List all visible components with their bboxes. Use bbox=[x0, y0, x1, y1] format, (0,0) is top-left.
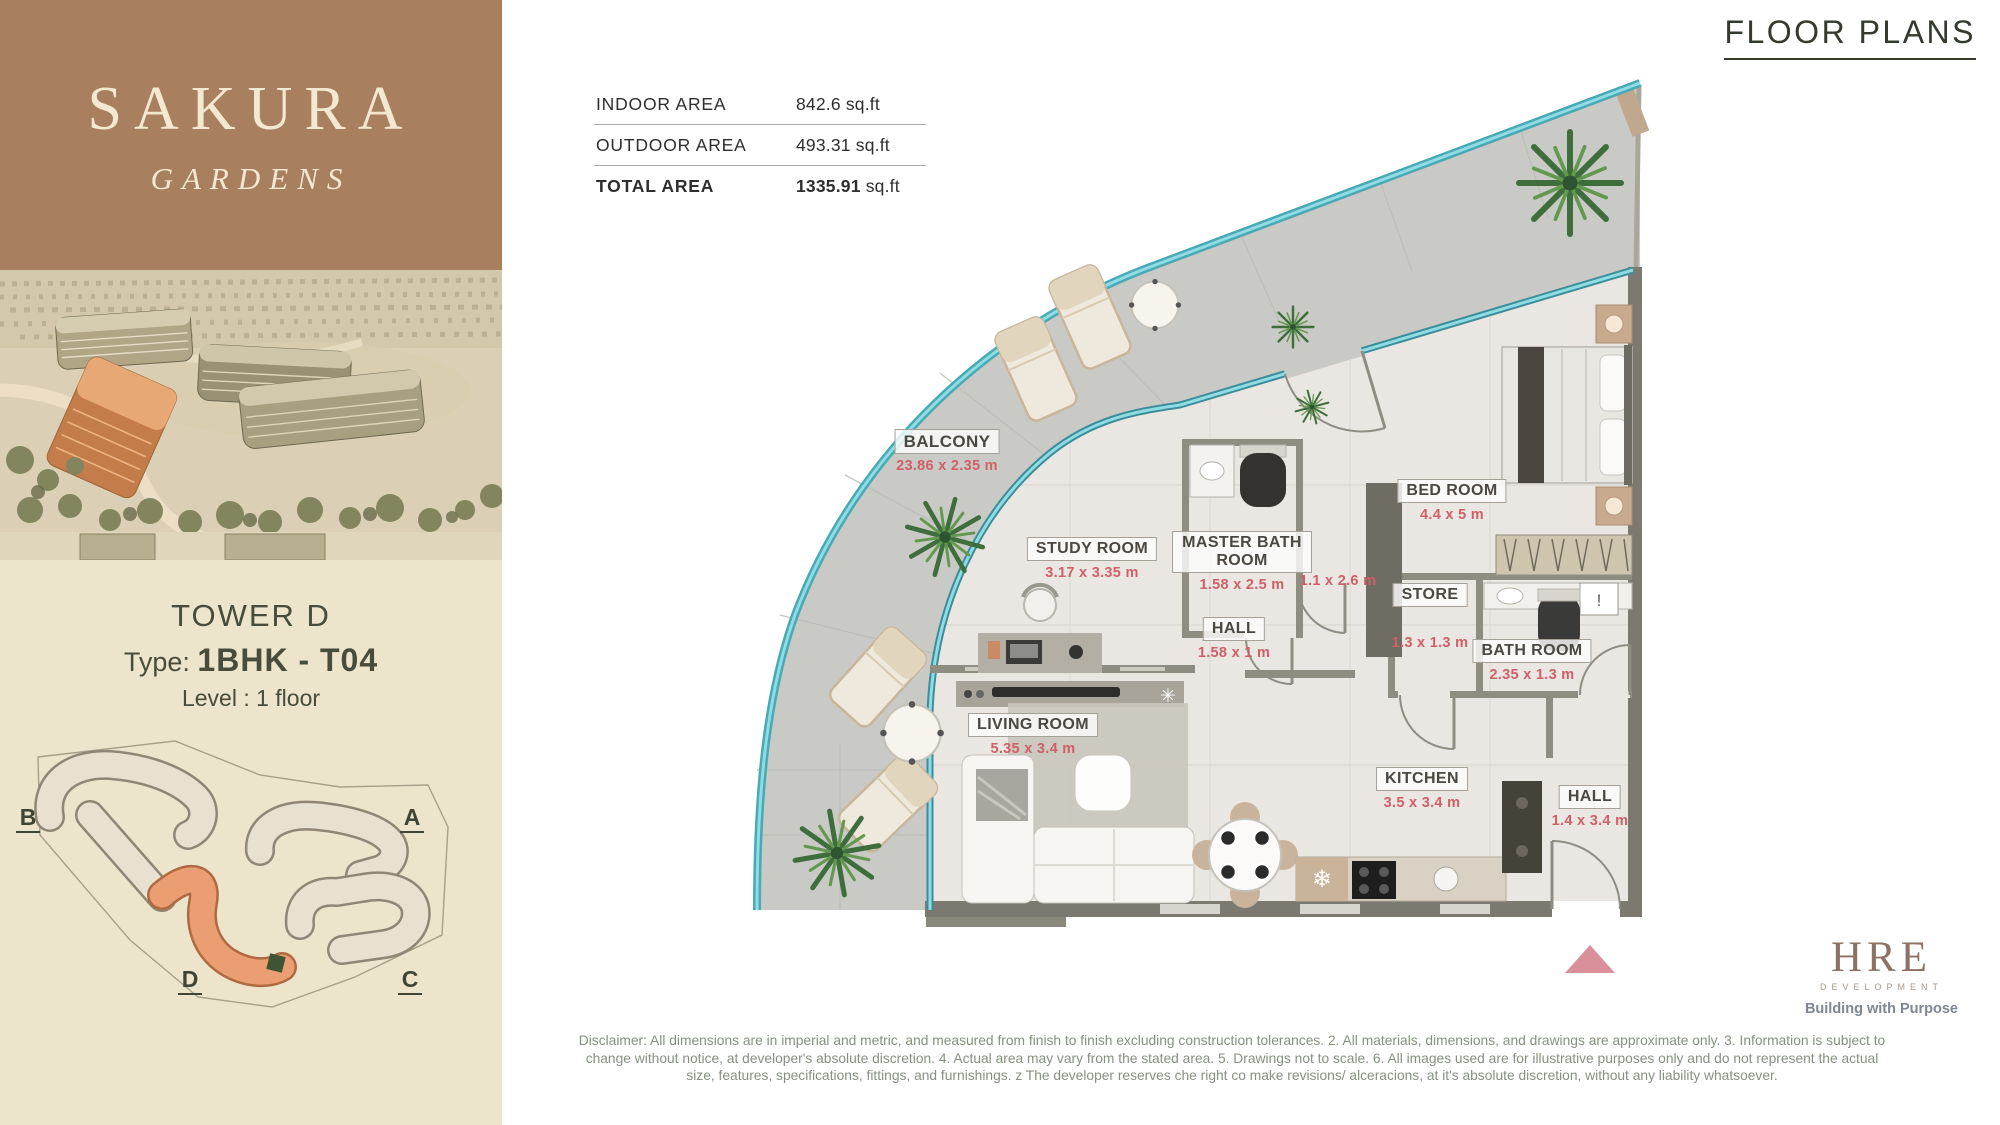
unit-level-line: Level : 1 floor bbox=[0, 685, 502, 712]
entrance-opening bbox=[1552, 901, 1620, 917]
unit-type-line: Type: 1BHK - T04 bbox=[0, 642, 502, 679]
bed bbox=[1502, 345, 1632, 485]
hre-logo-text: HRE bbox=[1805, 936, 1958, 979]
desk-chair bbox=[1023, 585, 1057, 621]
hre-logo-tagline: Building with Purpose bbox=[1805, 1001, 1958, 1017]
floor-plan-drawing: ! bbox=[740, 55, 1700, 995]
room-label-study: STUDY ROOM 3.17 x 3.35 m bbox=[1027, 537, 1157, 581]
developer-logo: HRE DEVELOPMENT Building with Purpose bbox=[1805, 936, 1958, 1017]
floor-plan-sheet: SAKURA GARDENS bbox=[0, 0, 2000, 1125]
type-label: Type: bbox=[124, 647, 190, 677]
site-building-a bbox=[260, 816, 394, 875]
type-value: 1BHK - T04 bbox=[197, 642, 378, 678]
room-label-bedroom: BED ROOM 4.4 x 5 m bbox=[1397, 479, 1506, 523]
tower-title: TOWER D bbox=[0, 598, 502, 634]
hre-logo-sub: DEVELOPMENT bbox=[1805, 982, 1958, 992]
alert-icon: ! bbox=[1597, 591, 1602, 610]
room-label-master-bath: MASTER BATH ROOM 1.58 x 2.5 m bbox=[1172, 531, 1312, 593]
page-title: FLOOR PLANS bbox=[1724, 14, 1976, 51]
brand-subname: GARDENS bbox=[151, 161, 352, 197]
page-title-underline bbox=[1724, 58, 1976, 60]
brand-block: SAKURA GARDENS bbox=[0, 0, 502, 270]
room-label-living: LIVING ROOM 5.35 x 3.4 m bbox=[968, 713, 1098, 757]
coffee-table bbox=[1075, 755, 1131, 811]
bottom-windows bbox=[1160, 904, 1490, 914]
entrance-arrow bbox=[1565, 945, 1615, 973]
study-desk bbox=[978, 633, 1102, 673]
plant-small bbox=[1273, 307, 1314, 348]
main-content: FLOOR PLANS INDOOR AREA 842.6 sq.ft OUTD… bbox=[502, 0, 2000, 1125]
room-label-balcony: BALCONY 23.86 x 2.35 m bbox=[895, 429, 1000, 474]
fridge-icon: ❄ bbox=[1312, 866, 1332, 893]
building-b bbox=[55, 309, 193, 370]
room-label-bathroom: BATH ROOM 2.35 x 1.3 m bbox=[1472, 639, 1591, 683]
room-label-hall-center: HALL 1.58 x 1 m bbox=[1198, 617, 1270, 661]
brand-name: SAKURA bbox=[88, 74, 415, 145]
level-value: 1 floor bbox=[256, 685, 320, 711]
wardrobe bbox=[1496, 535, 1632, 575]
aerial-scene bbox=[0, 270, 502, 560]
room-label-store: STORE 1.3 x 1.3 m bbox=[1392, 583, 1469, 651]
tower-label-a: A bbox=[404, 804, 421, 830]
site-building-d-highlighted bbox=[162, 880, 282, 972]
aerial-render-image bbox=[0, 270, 502, 560]
tower-label-d: D bbox=[182, 966, 199, 992]
level-label: Level : bbox=[182, 685, 250, 711]
room-label-kitchen: KITCHEN 3.5 x 3.4 m bbox=[1376, 767, 1468, 811]
tower-label-b: B bbox=[20, 804, 37, 830]
room-dims-corridor: 1.1 x 2.6 m bbox=[1300, 569, 1377, 589]
room-label-hall-entry: HALL 1.4 x 3.4 m bbox=[1552, 785, 1629, 829]
bottom-wall bbox=[925, 901, 1628, 917]
site-building-c bbox=[300, 886, 416, 950]
unit-info: TOWER D Type: 1BHK - T04 Level : 1 floor bbox=[0, 598, 502, 712]
plant-fern bbox=[1519, 132, 1621, 234]
site-plan: B A D C bbox=[10, 735, 492, 1035]
disclaimer-text: Disclaimer: All dimensions are in imperi… bbox=[572, 1032, 1892, 1085]
sidebar: SAKURA GARDENS bbox=[0, 0, 502, 1125]
tower-label-c: C bbox=[402, 966, 419, 992]
